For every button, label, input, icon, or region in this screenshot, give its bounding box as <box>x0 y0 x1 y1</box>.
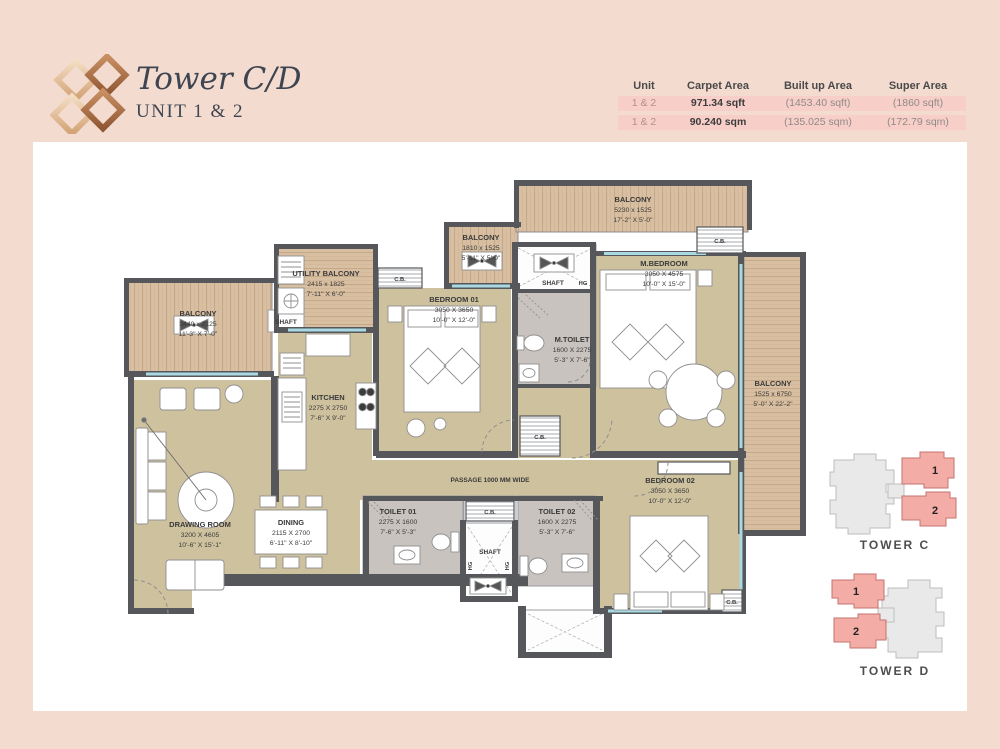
svg-text:5230 x 1525: 5230 x 1525 <box>614 207 652 214</box>
shaft-label: SHAFT <box>275 319 297 326</box>
svg-text:DINING: DINING <box>278 518 304 527</box>
svg-text:3050 X 4575: 3050 X 4575 <box>645 271 684 278</box>
svg-text:BALCONY: BALCONY <box>754 379 791 388</box>
svg-text:1600 X 2275: 1600 X 2275 <box>553 347 592 354</box>
cb-label: C.B. <box>534 435 546 441</box>
table-row: 1 & 2 971.34 sqft (1453.40 sqft) (1860 s… <box>618 96 966 111</box>
brand-logo-icon <box>50 54 138 134</box>
svg-text:1525 x 6750: 1525 x 6750 <box>754 391 792 398</box>
svg-text:6'-11" X 8'-10": 6'-11" X 8'-10" <box>270 540 313 547</box>
svg-text:BEDROOM 01: BEDROOM 01 <box>429 295 479 304</box>
svg-text:3440 x 2125: 3440 x 2125 <box>179 321 217 328</box>
svg-text:M.TOILET: M.TOILET <box>555 335 590 344</box>
cb-label: C.B. <box>484 510 496 516</box>
room-label-bedroom02: BEDROOM 02 3050 X 3650 10'-0" X 12'-0" <box>645 476 695 505</box>
carpet-cell: 90.240 sqm <box>670 115 766 130</box>
shaft-label: SHAFT <box>479 549 501 556</box>
keyplan-unit-1 <box>902 452 954 488</box>
svg-text:5'-0" X 22'-2": 5'-0" X 22'-2" <box>753 401 793 408</box>
page: Tower C/D UNIT 1 & 2 Unit Carpet Area Bu… <box>0 0 1000 749</box>
unit-number: 2 <box>932 505 938 517</box>
svg-text:10'-0" X 12'-0": 10'-0" X 12'-0" <box>649 498 693 505</box>
unit-cell: 1 & 2 <box>618 96 670 111</box>
super-cell: (172.79 sqm) <box>870 115 966 130</box>
logo-diamond-icon <box>58 62 95 99</box>
col-header-builtup: Built up Area <box>766 80 870 92</box>
bed-icon <box>614 516 724 610</box>
col-header-carpet: Carpet Area <box>670 80 766 92</box>
room-label-kitchen: KITCHEN 2275 X 2750 7'-6" X 9'-0" <box>309 393 348 422</box>
svg-text:7'-6" X 5'-3": 7'-6" X 5'-3" <box>380 529 416 536</box>
unit-number: 1 <box>853 586 859 598</box>
svg-text:10'-0" X 12'-0": 10'-0" X 12'-0" <box>433 317 477 324</box>
svg-text:M.BEDROOM: M.BEDROOM <box>640 259 688 268</box>
tower-c-label: TOWER C <box>824 538 966 552</box>
keyplan-building-outline <box>830 454 894 534</box>
tower-d-label: TOWER D <box>824 664 966 678</box>
svg-text:1600 X 2275: 1600 X 2275 <box>538 519 577 526</box>
svg-text:TOILET 01: TOILET 01 <box>380 507 417 516</box>
svg-text:3050 X 3650: 3050 X 3650 <box>435 307 474 314</box>
svg-text:2115 X 2700: 2115 X 2700 <box>272 530 310 537</box>
room-label-mbedroom: M.BEDROOM 3050 X 4575 10'-0" X 15'-0" <box>640 259 688 288</box>
keyplan-tower-c: 1 2 <box>824 444 966 538</box>
svg-text:1810 x 1525: 1810 x 1525 <box>462 245 500 252</box>
svg-text:BEDROOM 02: BEDROOM 02 <box>645 476 695 485</box>
hg-label: HG <box>505 561 511 570</box>
cb-label: C.B. <box>394 277 406 283</box>
unit-number: 2 <box>853 626 859 638</box>
cb-label: C.B. <box>714 239 726 245</box>
svg-text:7'-6" X 9'-0": 7'-6" X 9'-0" <box>310 415 346 422</box>
svg-text:TOILET 02: TOILET 02 <box>539 507 576 516</box>
room-label-balcony-left: BALCONY 3440 x 2125 11'-3" X 7'-0" <box>179 309 218 338</box>
unit-cell: 1 & 2 <box>618 115 670 130</box>
room-label-balcony-top: BALCONY 5230 x 1525 17'-2" X 5'-0" <box>613 195 653 224</box>
svg-text:3050 X 3650: 3050 X 3650 <box>651 488 690 495</box>
svg-text:BALCONY: BALCONY <box>614 195 651 204</box>
svg-text:17'-2" X 5'-0": 17'-2" X 5'-0" <box>613 217 653 224</box>
svg-text:2275 X 1600: 2275 X 1600 <box>379 519 418 526</box>
svg-text:5'-11" X 5'-0": 5'-11" X 5'-0" <box>462 255 501 262</box>
logo-diamond-icon <box>85 92 122 129</box>
svg-text:BALCONY: BALCONY <box>462 233 499 242</box>
svg-text:11'-3" X 7'-0": 11'-3" X 7'-0" <box>179 331 218 338</box>
passage-label: PASSAGE 1000 MM WIDE <box>451 477 531 484</box>
svg-text:BALCONY: BALCONY <box>179 309 216 318</box>
keyplan-unit-2 <box>834 614 886 648</box>
room-label-balcony-right: BALCONY 1525 x 6750 5'-0" X 22'-2" <box>753 379 793 408</box>
unit-number: 1 <box>932 465 938 477</box>
svg-text:5'-3" X 7'-6": 5'-3" X 7'-6" <box>539 529 575 536</box>
page-title: Tower C/D <box>136 62 302 96</box>
hg-label: HG <box>468 561 474 570</box>
room-label-bedroom01: BEDROOM 01 3050 X 3650 10'-0" X 12'-0" <box>429 295 479 324</box>
floor-plan: BALCONY 3440 x 2125 11'-3" X 7'-0" UTILI… <box>110 180 820 670</box>
cb-label: C.B. <box>726 600 738 606</box>
builtup-cell: (135.025 sqm) <box>766 115 870 130</box>
svg-text:3200 X 4605: 3200 X 4605 <box>181 532 220 539</box>
col-header-super: Super Area <box>870 80 966 92</box>
svg-text:2415 x 1825: 2415 x 1825 <box>307 281 345 288</box>
page-subtitle: UNIT 1 & 2 <box>136 101 302 123</box>
table-row: 1 & 2 90.240 sqm (135.025 sqm) (172.79 s… <box>618 115 966 130</box>
carpet-cell: 971.34 sqft <box>670 96 766 111</box>
svg-text:2275 X 2750: 2275 X 2750 <box>309 405 348 412</box>
svg-text:7'-11" X 6'-0": 7'-11" X 6'-0" <box>307 291 346 298</box>
room-label-mtoilet: M.TOILET 1600 X 2275 5'-3" X 7'-6" <box>553 335 592 364</box>
svg-text:KITCHEN: KITCHEN <box>311 393 344 402</box>
keyplan-unit-2 <box>902 492 956 526</box>
hg-label: HG <box>579 281 588 287</box>
logo-diamond-icon <box>89 57 126 94</box>
room-label-toilet01: TOILET 01 2275 X 1600 7'-6" X 5'-3" <box>379 507 418 536</box>
room-label-toilet02: TOILET 02 1600 X 2275 5'-3" X 7'-6" <box>538 507 577 536</box>
svg-text:UTILITY BALCONY: UTILITY BALCONY <box>292 269 359 278</box>
keyplan-tower-d: 1 2 <box>824 568 966 662</box>
svg-text:DRAWING ROOM: DRAWING ROOM <box>169 520 231 529</box>
super-cell: (1860 sqft) <box>870 96 966 111</box>
builtup-cell: (1453.40 sqft) <box>766 96 870 111</box>
svg-text:10'-0" X 15'-0": 10'-0" X 15'-0" <box>643 281 687 288</box>
room-label-balcony-bedroom01: BALCONY 1810 x 1525 5'-11" X 5'-0" <box>462 233 501 262</box>
logo-diamond-icon <box>54 97 91 134</box>
svg-text:5'-3" X 7'-6": 5'-3" X 7'-6" <box>554 357 590 364</box>
col-header-unit: Unit <box>618 80 670 92</box>
shaft-label: SHAFT <box>542 280 564 287</box>
area-table: Unit Carpet Area Built up Area Super Are… <box>618 80 966 130</box>
svg-text:10'-6" X 15'-1": 10'-6" X 15'-1" <box>179 542 223 549</box>
